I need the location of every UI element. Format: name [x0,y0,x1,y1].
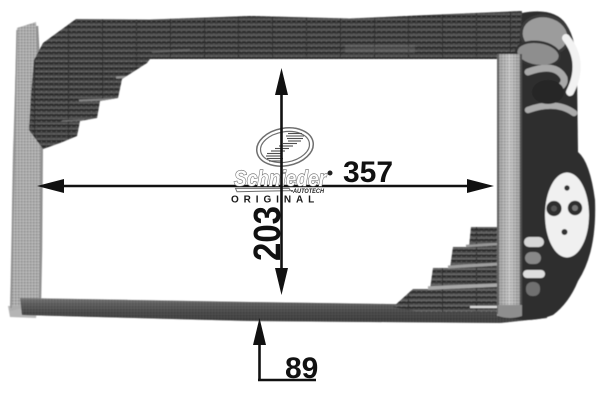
svg-text:ORIGINAL: ORIGINAL [231,195,319,206]
svg-text:89: 89 [285,352,318,385]
svg-text:203: 203 [247,206,289,261]
svg-text:357: 357 [343,156,393,189]
